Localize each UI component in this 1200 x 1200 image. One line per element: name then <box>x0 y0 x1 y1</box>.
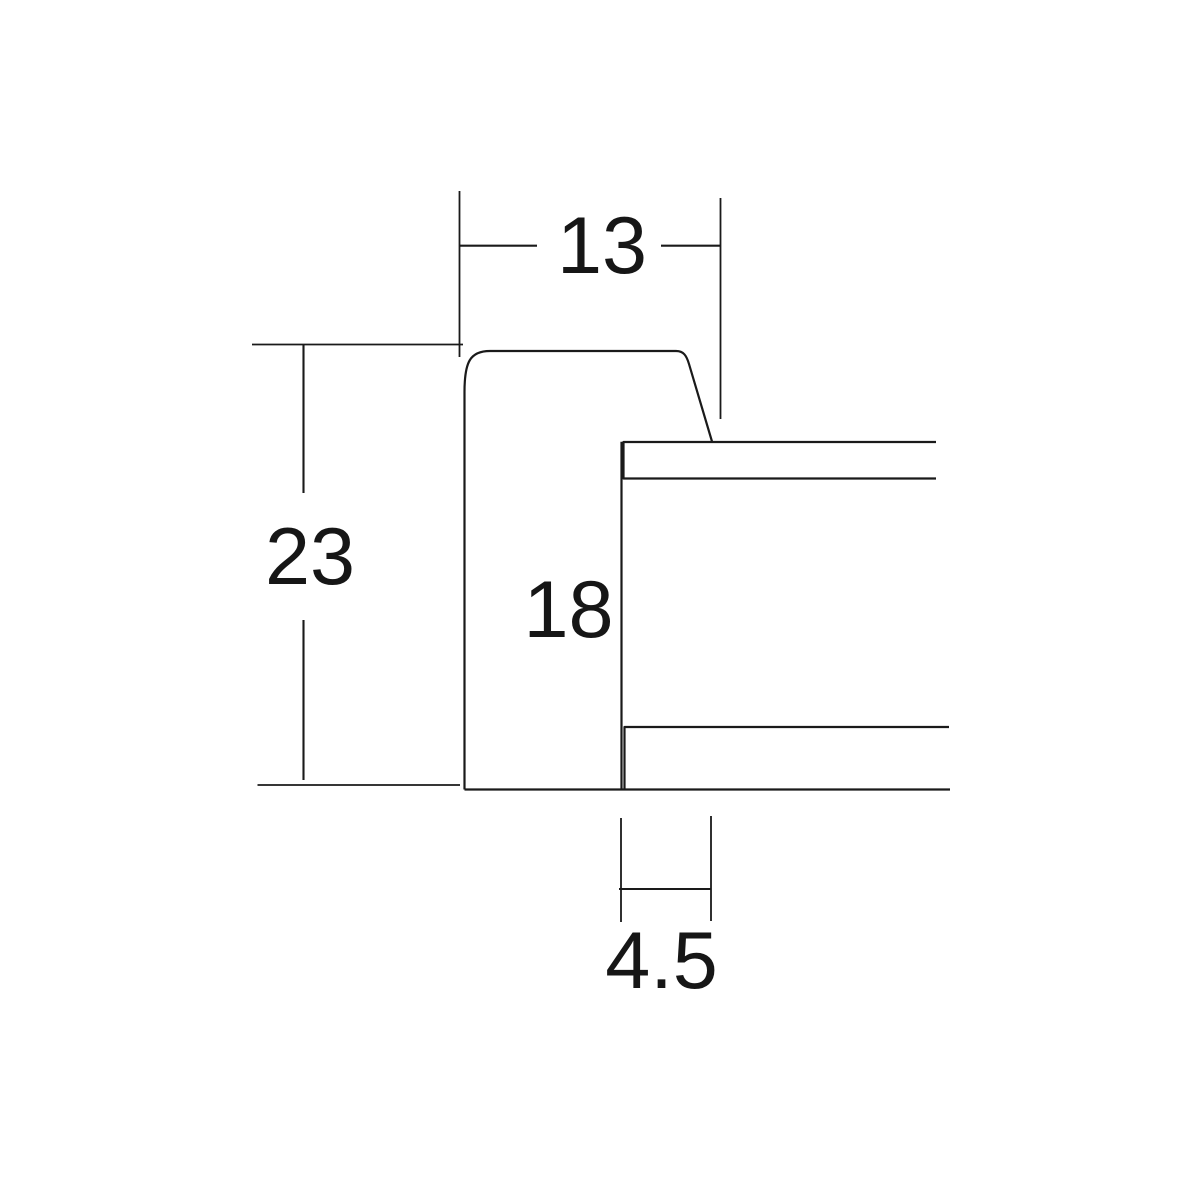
bottom-panel-outline <box>625 727 950 789</box>
bottom-panel <box>625 727 950 789</box>
dimension-inner-depth: 18 <box>523 565 613 655</box>
dimension-label-inner-depth: 18 <box>523 565 613 655</box>
dimension-bottom-width: 4.5 <box>605 816 718 1006</box>
dimension-label-bottom-width: 4.5 <box>605 916 718 1006</box>
dimension-top-width: 13 <box>460 191 721 419</box>
cross-section-diagram: 13 23 18 4.5 <box>0 0 1200 1200</box>
dimension-label-left-height: 23 <box>265 512 355 602</box>
top-panel-outline <box>624 442 937 479</box>
dimension-label-top-width: 13 <box>557 201 647 291</box>
top-panel <box>624 442 937 479</box>
dimension-left-height: 23 <box>252 345 463 786</box>
drawing-canvas: 13 23 18 4.5 <box>0 0 1200 1200</box>
